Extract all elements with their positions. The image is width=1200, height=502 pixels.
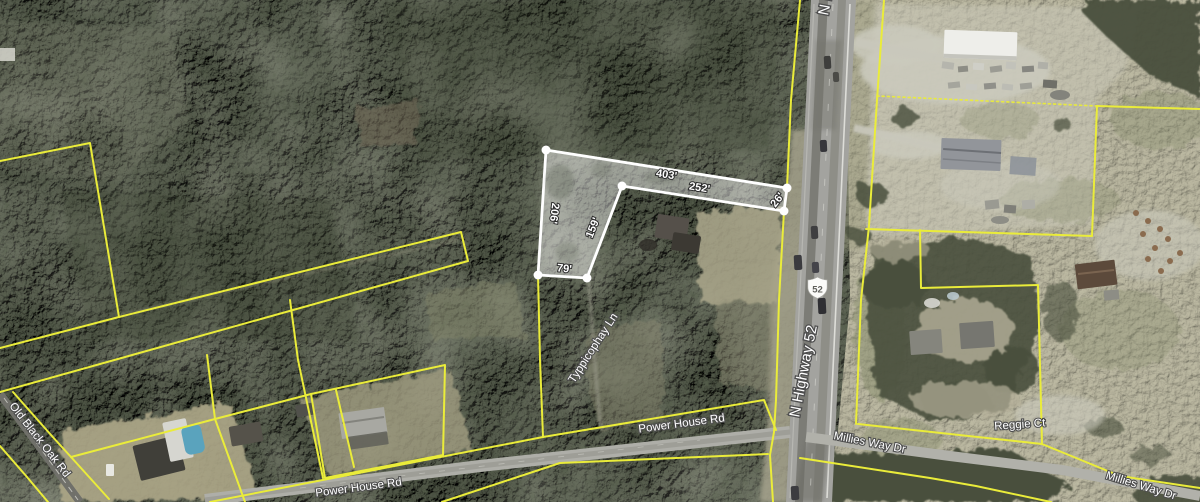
- svg-text:52: 52: [812, 285, 823, 296]
- svg-text:79': 79': [556, 262, 572, 276]
